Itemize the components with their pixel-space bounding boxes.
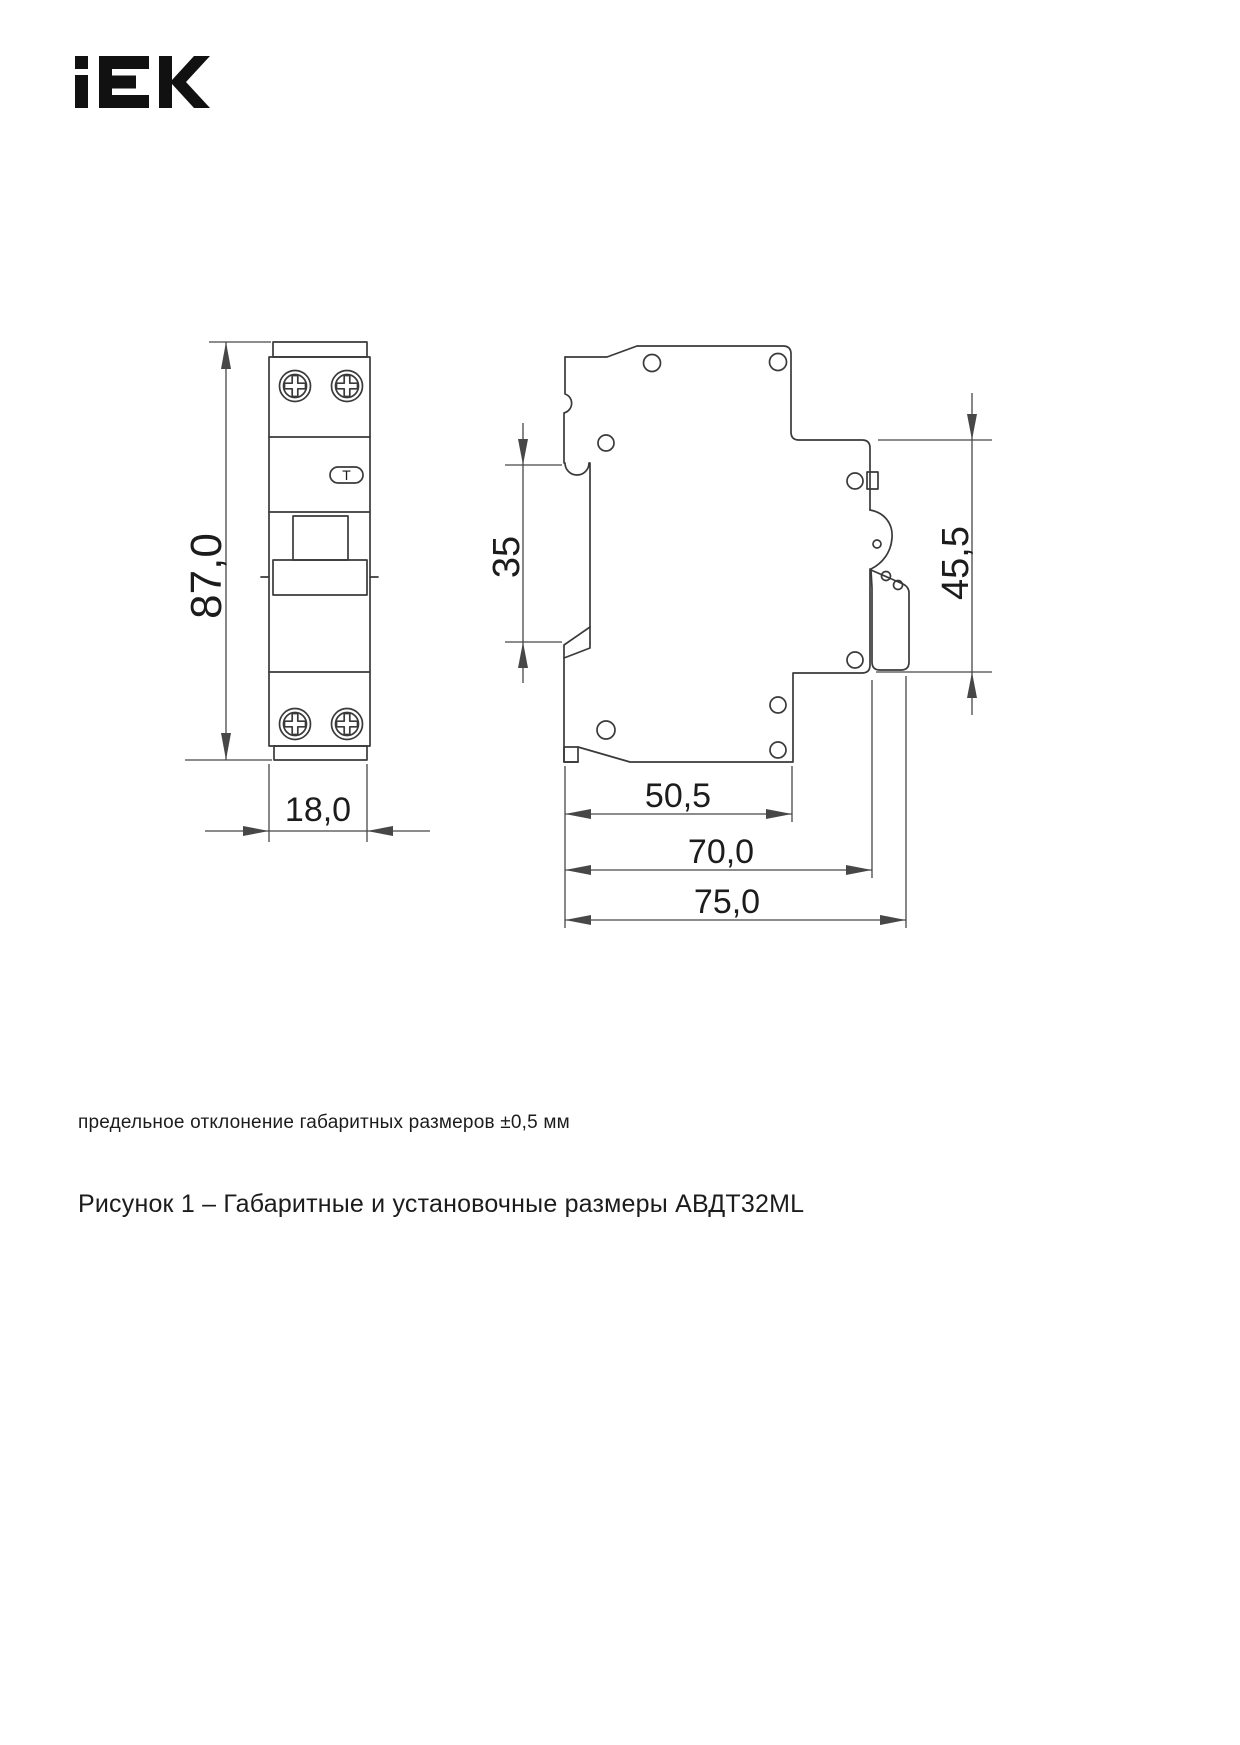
tolerance-note: предельное отклонение габаритных размеро… bbox=[78, 1112, 570, 1134]
dimension-mid-depth: 70,0 bbox=[565, 680, 872, 878]
dim-label-87: 87,0 bbox=[182, 533, 231, 619]
dimension-rear-height: 45,5 bbox=[876, 393, 992, 715]
screw-bottom-left bbox=[280, 709, 311, 740]
latch-pivot-bulge bbox=[870, 510, 892, 569]
dim-label-75: 75,0 bbox=[694, 883, 760, 921]
din-upper-claw bbox=[564, 463, 590, 627]
page: Т bbox=[0, 0, 1240, 1745]
dim-label-50-5: 50,5 bbox=[645, 777, 711, 815]
dim-label-70: 70,0 bbox=[688, 833, 754, 871]
dimension-din-slot: 35 bbox=[486, 423, 562, 683]
dimension-total-depth: 75,0 bbox=[565, 676, 906, 928]
rivet-holes bbox=[597, 354, 903, 759]
front-top-cap bbox=[273, 342, 367, 357]
iek-logo-letter-e bbox=[99, 56, 149, 108]
screw-bottom-right bbox=[332, 709, 363, 740]
dim-label-35: 35 bbox=[486, 536, 528, 578]
screw-top-right bbox=[332, 371, 363, 402]
side-view bbox=[564, 346, 909, 762]
iek-logo-letter-i bbox=[75, 56, 88, 108]
screw-top-left bbox=[280, 371, 311, 402]
dim-label-45-5: 45,5 bbox=[935, 526, 977, 600]
test-button-label: Т bbox=[342, 467, 351, 483]
figure-caption: Рисунок 1 – Габаритные и установочные ра… bbox=[78, 1190, 804, 1219]
iek-logo-letter-k bbox=[159, 56, 210, 108]
toggle-lever bbox=[293, 516, 348, 560]
dim-label-18: 18,0 bbox=[285, 791, 351, 829]
dimension-front-width: 18,0 bbox=[205, 764, 430, 842]
iek-logo bbox=[75, 56, 210, 108]
front-view: Т bbox=[261, 342, 378, 760]
mounting-foot bbox=[564, 747, 578, 762]
technical-drawing: Т bbox=[0, 0, 1240, 1745]
din-lower-claw bbox=[564, 627, 590, 658]
side-clip bbox=[867, 472, 878, 489]
toggle-handle bbox=[273, 560, 367, 595]
front-body bbox=[269, 357, 370, 746]
front-bottom-cap bbox=[274, 746, 367, 760]
dimension-front-height: 87,0 bbox=[182, 342, 272, 760]
